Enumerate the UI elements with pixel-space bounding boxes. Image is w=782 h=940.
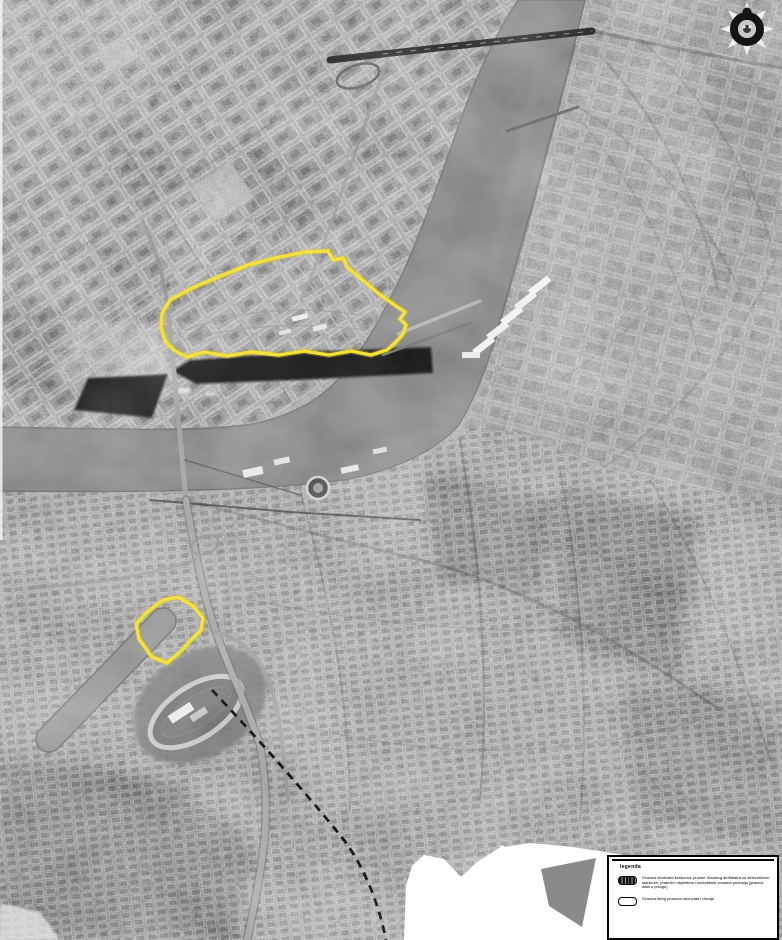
map-legend: legenda Granica obuhvata konkursa: prost… (607, 855, 779, 940)
legend-item: Granica šireg prostora obuhvata i uticaj… (618, 897, 771, 906)
aerial-map (0, 0, 782, 940)
legend-item-label: Granica obuhvata konkursa: prostor Savsk… (642, 876, 771, 890)
aerial-map-page: legenda Granica obuhvata konkursa: prost… (0, 0, 782, 940)
legend-top-rule (612, 859, 774, 861)
hatched-boundary-swatch (618, 876, 637, 885)
emblem-north-knob (743, 8, 752, 17)
legend-item: Granica obuhvata konkursa: prostor Savsk… (618, 876, 771, 890)
tonal-clouds (0, 0, 782, 940)
sunburst-compass-emblem (720, 2, 774, 56)
legend-item-label: Granica šireg prostora obuhvata i uticaj… (642, 897, 714, 902)
outline-boundary-swatch (618, 897, 637, 906)
legend-title: legenda (620, 864, 777, 870)
